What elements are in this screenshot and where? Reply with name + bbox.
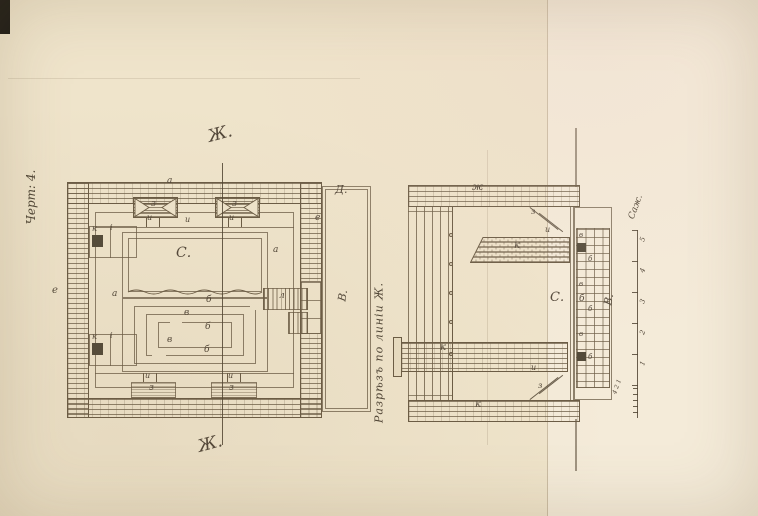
plan-small-hatch <box>288 312 308 334</box>
section-wall-bottom <box>408 400 580 422</box>
section-rail-tie <box>408 211 453 212</box>
section-brick-trapezoid <box>470 237 570 263</box>
section-chimney-flange <box>393 337 402 377</box>
section-rail-pin <box>449 233 453 237</box>
plan-wall-left <box>67 182 89 418</box>
section-rail-pin <box>449 262 453 266</box>
annotation-letter: Ж. <box>196 433 224 456</box>
plan-wavy-line <box>126 288 264 296</box>
scale-tick <box>632 292 638 293</box>
plan-compartment-divider <box>110 334 111 366</box>
plan-flue-core <box>158 322 232 348</box>
section-rail-tie <box>408 395 453 396</box>
section-rail-pin <box>449 320 453 324</box>
section-caption: Разрѣзъ по линіи Ж. <box>373 253 386 453</box>
scale-subdivisions <box>633 388 638 418</box>
section-wall-top <box>408 185 580 207</box>
scan-corner-mark <box>0 0 10 34</box>
horizontal-crease <box>8 78 360 79</box>
scale-tick <box>632 354 638 355</box>
plan-stub <box>227 373 241 382</box>
plan-chamber-inner <box>128 238 262 292</box>
section-dark-cell <box>577 243 586 252</box>
plan-stairs-hatch <box>263 288 308 310</box>
plan-heater-right <box>211 382 257 398</box>
fold-line-bottom <box>575 419 577 471</box>
section-dark-cell <box>577 352 586 361</box>
plan-flue-opening <box>250 304 262 310</box>
plan-flue-opening <box>152 353 166 359</box>
plan-stub <box>228 218 242 227</box>
plan-hearth-square <box>92 343 103 355</box>
plan-inner-bottom-line <box>95 373 294 374</box>
plan-section-centerline <box>222 163 223 445</box>
plan-wall-top <box>67 182 322 204</box>
scale-tick <box>632 323 638 324</box>
plan-wall-bottom <box>67 398 322 418</box>
plan-compartment-divider <box>110 226 111 258</box>
scale-tick <box>632 261 638 262</box>
plan-hearth-square <box>92 235 103 247</box>
plan-stub <box>143 373 157 382</box>
plan-flue-opening <box>170 319 182 325</box>
section-rail-pin <box>449 291 453 295</box>
plan-heater-left <box>131 382 176 398</box>
plan-firebox-left <box>133 197 178 218</box>
annotation-letter: Ж. <box>206 123 234 146</box>
scale-tick <box>632 385 638 386</box>
section-chimney <box>401 342 568 372</box>
section-checker-column <box>576 228 610 388</box>
scanned-drawing-page: Черт: 4. <box>0 0 758 516</box>
fold-line-top <box>575 128 577 187</box>
figure-number-label: Черт: 4. <box>24 152 38 242</box>
plan-stub <box>146 218 160 227</box>
plan-annex-inner <box>325 189 368 409</box>
vertical-crease <box>487 150 488 445</box>
annotation-letter: е <box>52 286 58 296</box>
